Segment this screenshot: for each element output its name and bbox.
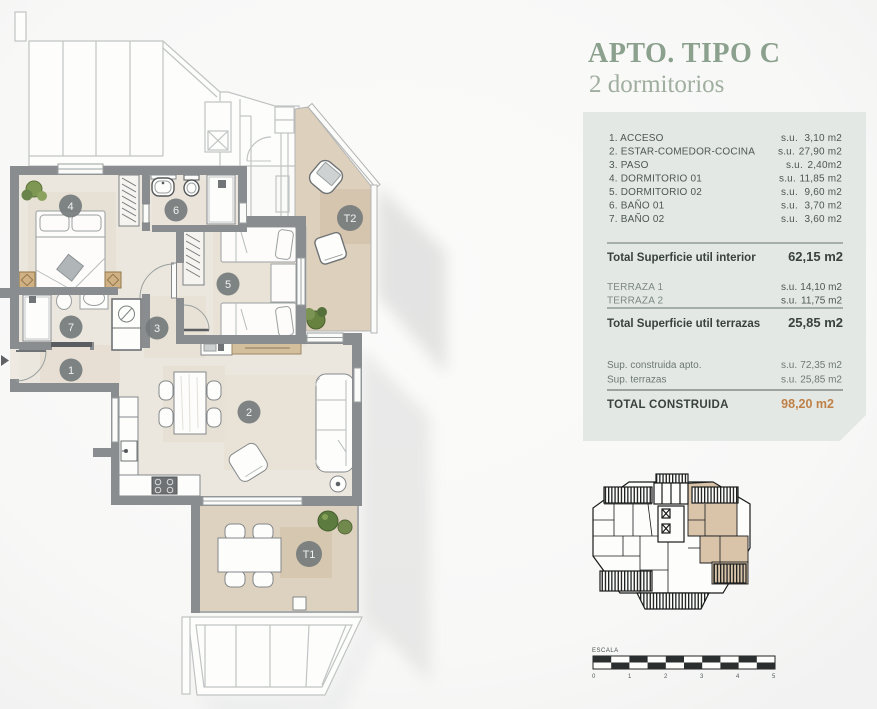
svg-text:s.u.: s.u. (781, 214, 798, 225)
svg-text:Sup. construida apto.: Sup. construida apto. (607, 360, 702, 371)
svg-text:Sup. terrazas: Sup. terrazas (607, 375, 666, 386)
svg-text:s.u.: s.u. (781, 360, 797, 371)
svg-text:4. DORMITORIO 01: 4. DORMITORIO 01 (609, 174, 702, 185)
svg-text:s.u.: s.u. (781, 187, 798, 198)
svg-text:5: 5 (225, 279, 231, 291)
svg-text:ESCALA: ESCALA (592, 648, 619, 654)
svg-text:27,90 m2: 27,90 m2 (799, 147, 843, 158)
svg-text:62,15 m2: 62,15 m2 (788, 249, 843, 264)
svg-text:2: 2 (246, 407, 252, 419)
svg-text:14,10 m2: 14,10 m2 (800, 282, 842, 293)
svg-text:72,35 m2: 72,35 m2 (800, 360, 842, 371)
svg-text:TERRAZA 1: TERRAZA 1 (607, 282, 663, 293)
svg-text:s.u.: s.u. (781, 296, 797, 307)
svg-text:7: 7 (68, 322, 74, 334)
svg-text:6. BAÑO 01: 6. BAÑO 01 (609, 199, 665, 212)
svg-text:25,85 m2: 25,85 m2 (788, 315, 843, 330)
svg-text:s.u.: s.u. (779, 174, 796, 185)
svg-text:2. ESTAR-COMEDOR-COCINA: 2. ESTAR-COMEDOR-COCINA (609, 147, 755, 158)
svg-text:s.u.: s.u. (778, 147, 795, 158)
svg-text:4: 4 (67, 201, 73, 213)
svg-text:3,70 m2: 3,70 m2 (804, 201, 842, 212)
svg-text:11,75 m2: 11,75 m2 (801, 296, 842, 307)
svg-text:T2: T2 (344, 213, 357, 225)
svg-text:s.u.: s.u. (786, 160, 803, 171)
svg-text:2 dormitorios: 2 dormitorios (589, 71, 724, 98)
svg-text:1: 1 (68, 365, 74, 377)
svg-text:TOTAL CONSTRUIDA: TOTAL CONSTRUIDA (607, 399, 729, 411)
svg-text:25,85 m2: 25,85 m2 (800, 375, 842, 386)
svg-text:APTO. TIPO C: APTO. TIPO C (588, 38, 780, 69)
svg-text:Total Superficie util interior: Total Superficie util interior (607, 252, 756, 264)
svg-text:Total Superficie util terrazas: Total Superficie util terrazas (607, 318, 760, 330)
svg-text:2,40m2: 2,40m2 (807, 160, 842, 171)
svg-text:s.u.: s.u. (781, 201, 798, 212)
svg-text:3. PASO: 3. PASO (609, 160, 649, 171)
svg-text:7. BAÑO 02: 7. BAÑO 02 (609, 212, 665, 225)
svg-text:s.u.: s.u. (781, 282, 797, 293)
svg-text:TERRAZA 2: TERRAZA 2 (607, 296, 663, 307)
svg-text:11,85 m2: 11,85 m2 (799, 174, 842, 185)
svg-text:5. DORMITORIO 02: 5. DORMITORIO 02 (609, 187, 702, 198)
svg-text:6: 6 (173, 205, 179, 217)
svg-text:3,60 m2: 3,60 m2 (804, 214, 842, 225)
svg-text:98,20 m2: 98,20 m2 (781, 397, 834, 411)
svg-text:s.u.: s.u. (781, 133, 798, 144)
svg-text:9,60 m2: 9,60 m2 (804, 187, 842, 198)
svg-text:s.u.: s.u. (781, 375, 797, 386)
svg-text:3,10 m2: 3,10 m2 (804, 133, 842, 144)
svg-text:1. ACCESO: 1. ACCESO (609, 133, 664, 144)
svg-text:T1: T1 (303, 549, 316, 561)
svg-text:3: 3 (154, 323, 160, 335)
